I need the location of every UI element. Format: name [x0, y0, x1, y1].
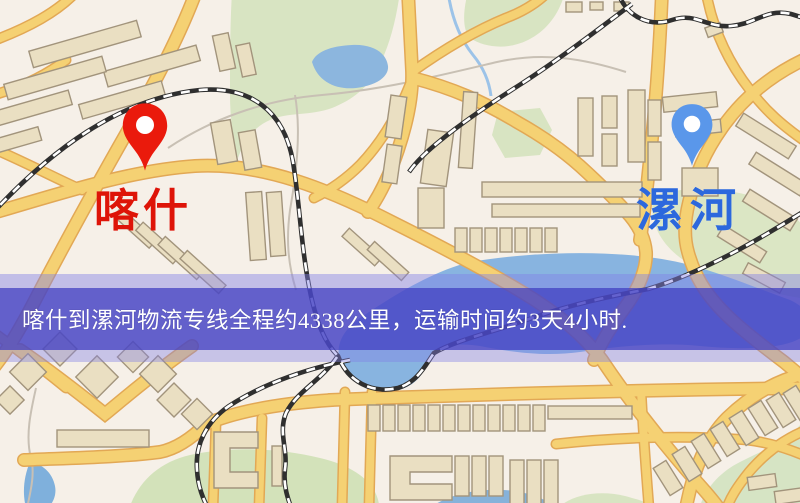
red-location-pin-icon: [121, 102, 169, 172]
destination-city-label: 漯河: [636, 174, 744, 240]
info-banner: 喀什到漯河物流专线全程约4338公里，运输时间约3天4小时.: [0, 288, 800, 350]
banner-bottom-tint: [0, 350, 800, 362]
banner-top-tint: [0, 274, 800, 288]
map-image: [0, 0, 800, 503]
route-summary-text: 喀什到漯河物流专线全程约4338公里，运输时间约3天4小时.: [0, 303, 628, 335]
blue-location-pin-icon: [669, 103, 715, 167]
route-map: 喀什到漯河物流专线全程约4338公里，运输时间约3天4小时. 喀什 漯河: [0, 0, 800, 503]
origin-city-label: 喀什: [94, 174, 192, 239]
